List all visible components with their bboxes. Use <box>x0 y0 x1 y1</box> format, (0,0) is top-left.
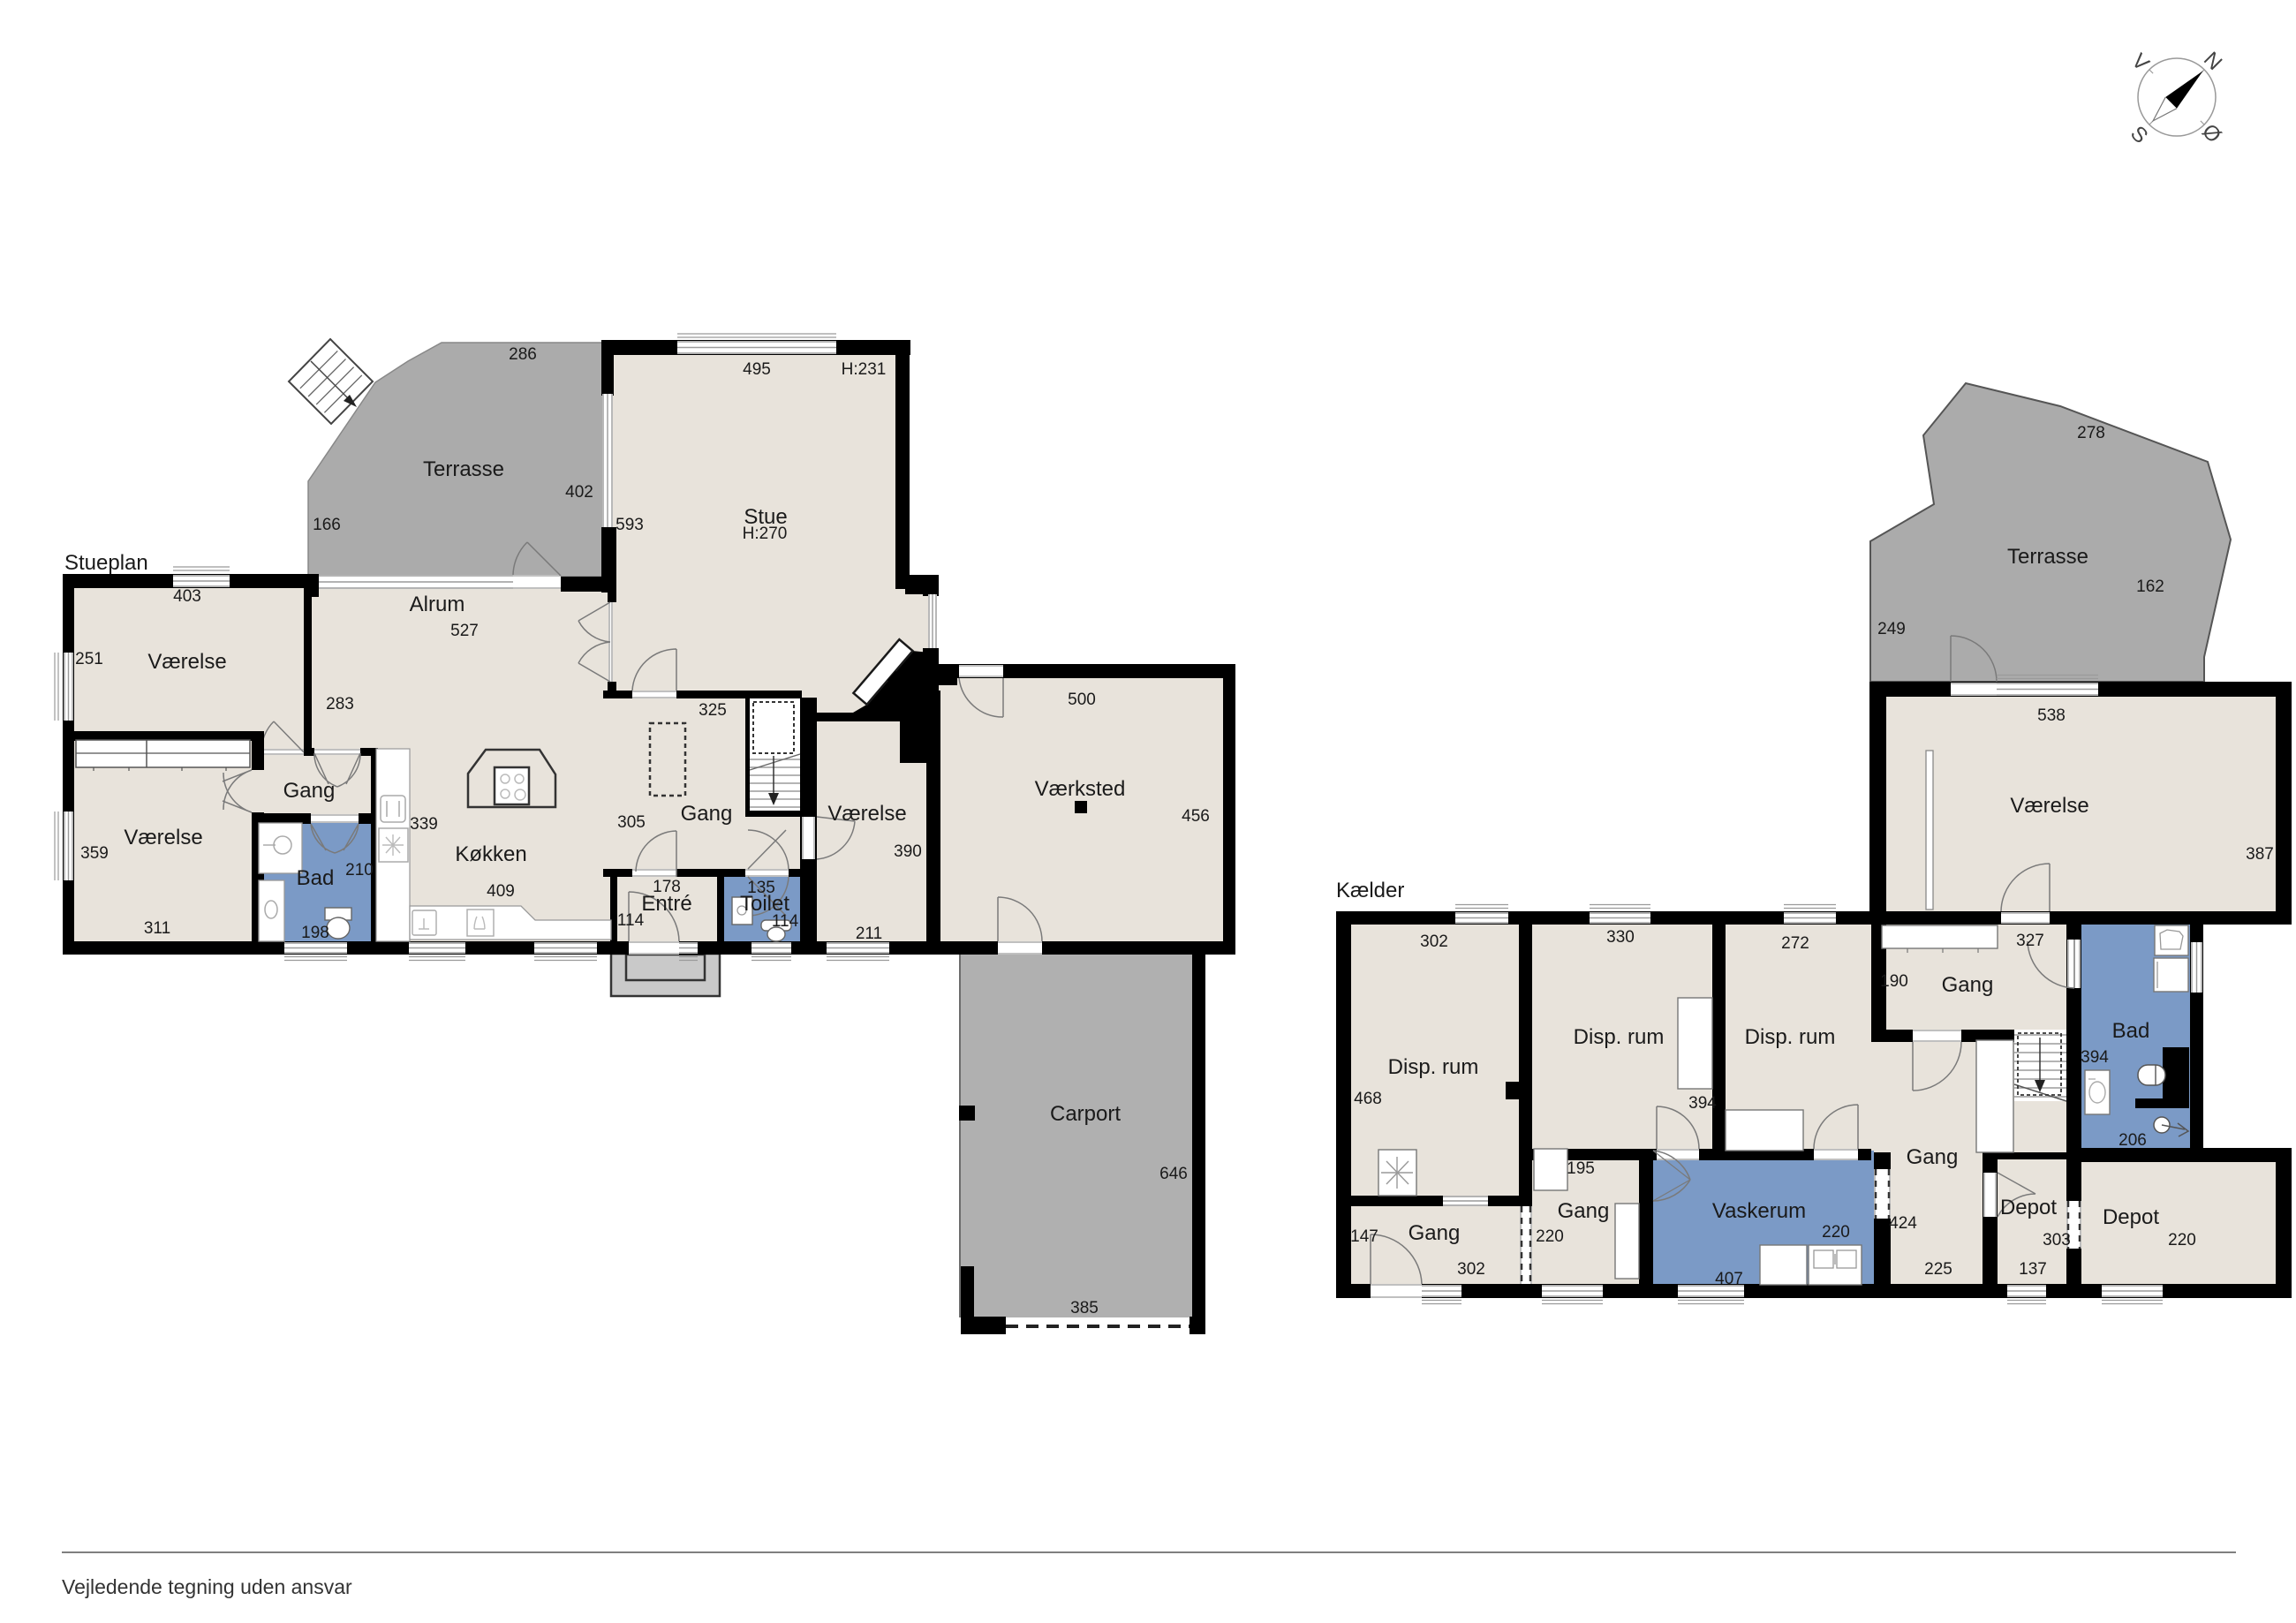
svg-text:249: 249 <box>1877 620 1906 638</box>
svg-text:Værelse: Værelse <box>124 826 202 849</box>
svg-text:325: 325 <box>699 701 727 720</box>
svg-text:198: 198 <box>301 924 329 942</box>
svg-text:Depot: Depot <box>2000 1196 2057 1219</box>
svg-text:Vejledende tegning uden ansvar: Vejledende tegning uden ansvar <box>62 1575 352 1598</box>
svg-text:409: 409 <box>487 882 515 901</box>
svg-text:Disp. rum: Disp. rum <box>1745 1025 1836 1049</box>
svg-text:Gang: Gang <box>1558 1199 1610 1223</box>
svg-text:593: 593 <box>616 516 644 534</box>
svg-text:468: 468 <box>1354 1090 1382 1108</box>
svg-text:Køkken: Køkken <box>455 842 526 866</box>
svg-text:403: 403 <box>173 587 201 606</box>
svg-text:302: 302 <box>1457 1260 1485 1279</box>
svg-text:283: 283 <box>326 695 354 713</box>
svg-text:330: 330 <box>1606 928 1635 947</box>
svg-text:407: 407 <box>1715 1270 1743 1288</box>
svg-text:500: 500 <box>1068 691 1096 709</box>
svg-text:311: 311 <box>144 919 170 938</box>
svg-text:Terrasse: Terrasse <box>423 457 504 481</box>
svg-text:251: 251 <box>75 650 103 668</box>
svg-text:387: 387 <box>2246 845 2274 864</box>
svg-text:424: 424 <box>1889 1214 1917 1233</box>
svg-text:Kælder: Kælder <box>1336 879 1404 902</box>
svg-text:Værksted: Værksted <box>1035 777 1126 801</box>
svg-text:Carport: Carport <box>1050 1102 1121 1126</box>
svg-text:162: 162 <box>2136 577 2164 596</box>
svg-text:302: 302 <box>1420 932 1448 951</box>
svg-text:137: 137 <box>2019 1260 2047 1279</box>
svg-text:303: 303 <box>2043 1231 2071 1249</box>
svg-text:Gang: Gang <box>1942 973 1994 997</box>
svg-text:220: 220 <box>2168 1231 2196 1249</box>
svg-text:390: 390 <box>894 842 922 861</box>
svg-text:Vaskerum: Vaskerum <box>1712 1199 1806 1223</box>
svg-text:Alrum: Alrum <box>410 593 465 616</box>
svg-text:527: 527 <box>450 622 479 640</box>
svg-text:Bad: Bad <box>2112 1019 2150 1043</box>
svg-text:495: 495 <box>743 360 771 379</box>
svg-text:220: 220 <box>1822 1223 1850 1242</box>
svg-text:H:270: H:270 <box>743 525 788 543</box>
svg-text:402: 402 <box>565 483 593 502</box>
svg-text:Gang: Gang <box>1907 1145 1959 1169</box>
svg-text:Bad: Bad <box>297 866 335 890</box>
svg-text:Gang: Gang <box>283 779 336 803</box>
svg-text:Værelse: Værelse <box>147 650 226 674</box>
svg-text:206: 206 <box>2119 1131 2147 1150</box>
svg-text:305: 305 <box>617 813 646 832</box>
svg-text:195: 195 <box>1567 1159 1595 1178</box>
svg-text:Stueplan: Stueplan <box>64 551 148 575</box>
svg-text:135: 135 <box>747 879 775 897</box>
svg-text:Disp. rum: Disp. rum <box>1574 1025 1665 1049</box>
svg-text:646: 646 <box>1159 1165 1188 1183</box>
svg-text:190: 190 <box>1880 972 1908 991</box>
svg-text:538: 538 <box>2037 706 2066 725</box>
svg-text:220: 220 <box>1536 1227 1564 1246</box>
svg-text:225: 225 <box>1924 1260 1952 1279</box>
svg-text:166: 166 <box>313 516 341 534</box>
svg-text:394: 394 <box>2081 1048 2109 1067</box>
svg-text:Terrasse: Terrasse <box>2007 545 2088 569</box>
svg-text:385: 385 <box>1070 1299 1099 1317</box>
svg-text:210: 210 <box>345 861 374 879</box>
svg-text:394: 394 <box>1688 1094 1717 1113</box>
svg-text:178: 178 <box>653 878 681 896</box>
svg-text:Værelse: Værelse <box>827 802 906 826</box>
svg-text:327: 327 <box>2016 932 2044 950</box>
svg-text:114: 114 <box>772 912 799 931</box>
svg-text:339: 339 <box>410 815 438 834</box>
svg-text:278: 278 <box>2077 424 2105 442</box>
svg-text:Depot: Depot <box>2103 1205 2159 1229</box>
svg-text:Gang: Gang <box>681 802 733 826</box>
svg-text:359: 359 <box>80 844 109 863</box>
svg-text:147: 147 <box>1350 1227 1378 1246</box>
svg-text:Disp. rum: Disp. rum <box>1388 1055 1479 1079</box>
svg-text:Gang: Gang <box>1409 1221 1461 1245</box>
svg-text:Værelse: Værelse <box>2010 794 2088 818</box>
svg-text:456: 456 <box>1182 807 1210 826</box>
svg-text:211: 211 <box>856 925 882 943</box>
svg-text:H:231: H:231 <box>842 360 887 379</box>
svg-text:286: 286 <box>509 345 537 364</box>
svg-text:272: 272 <box>1781 934 1809 953</box>
svg-text:114: 114 <box>617 911 645 930</box>
